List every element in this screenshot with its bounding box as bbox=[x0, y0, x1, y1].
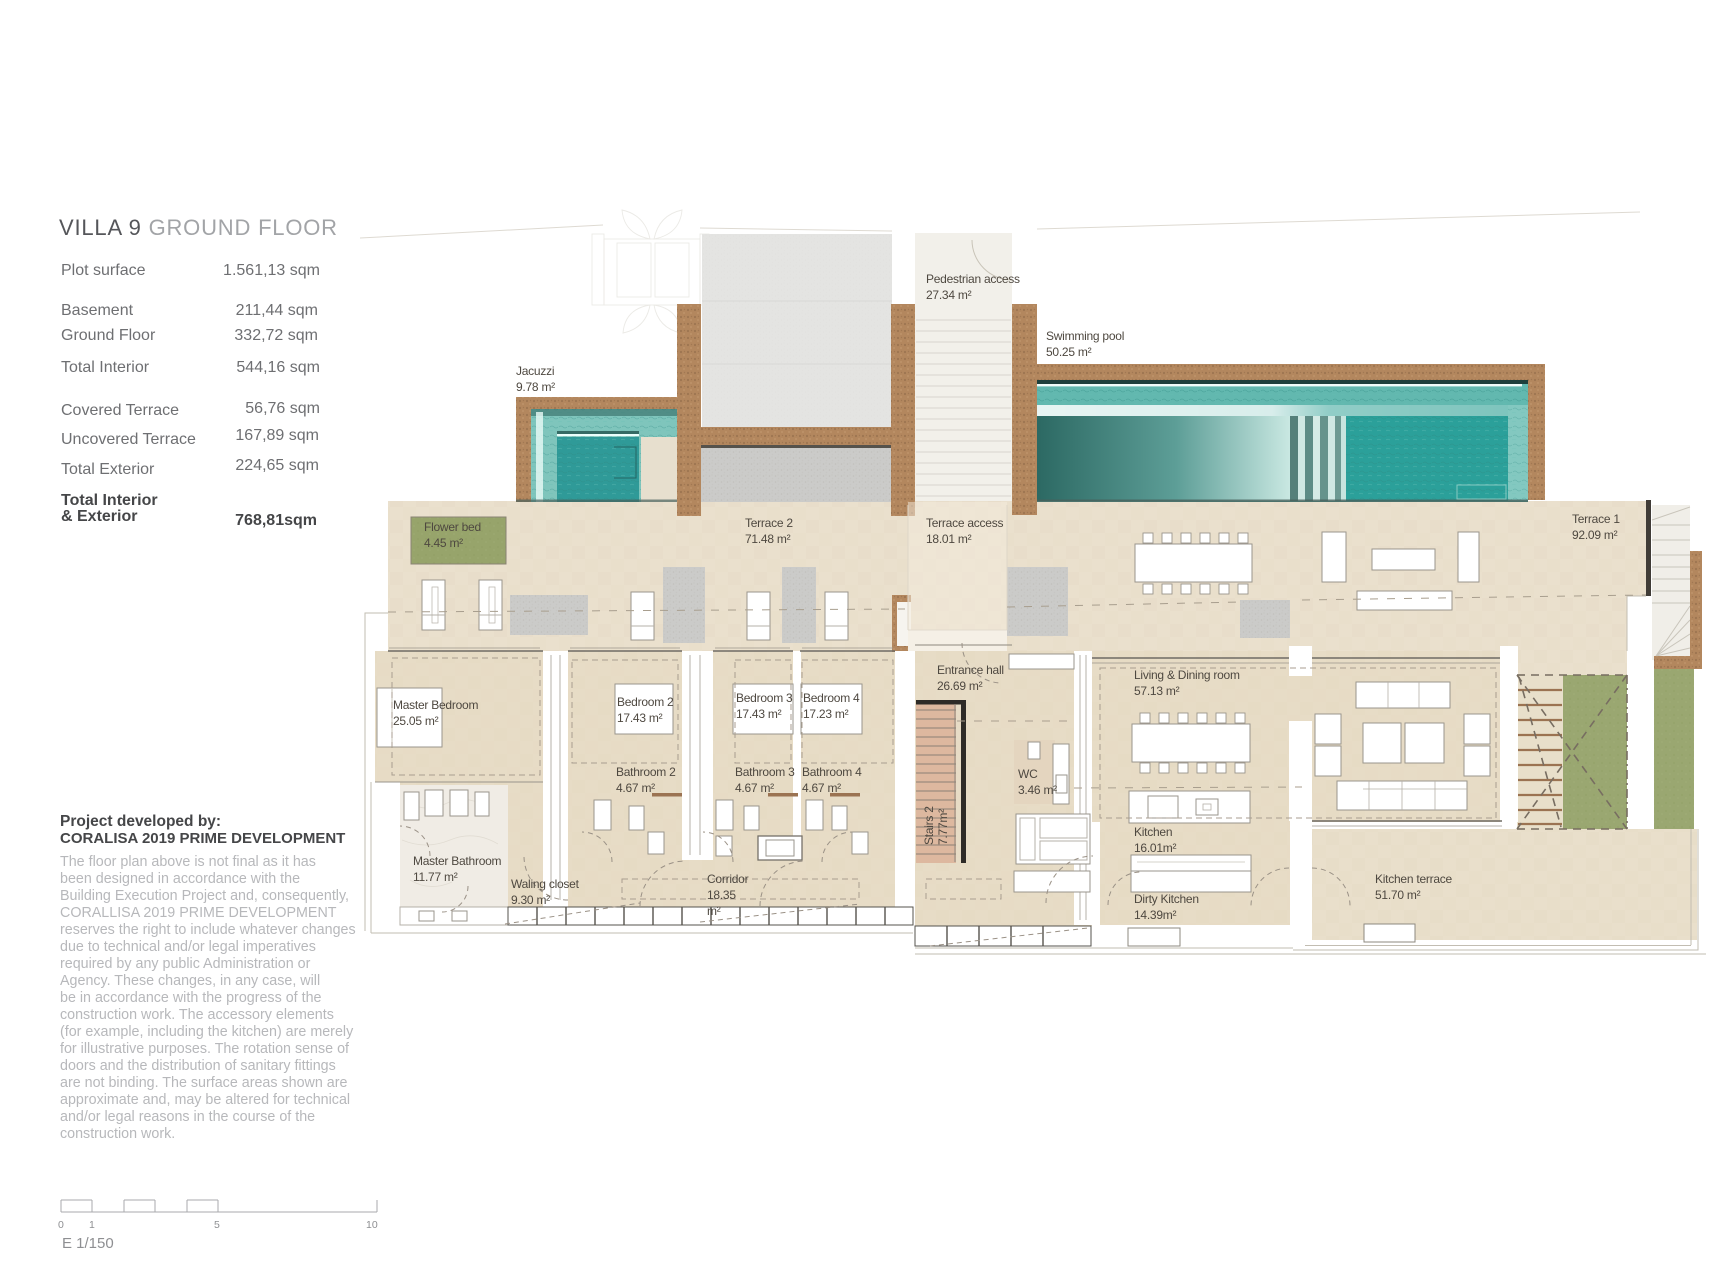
svg-text:7.77m²: 7.77m² bbox=[936, 809, 950, 845]
svg-text:57.13 m²: 57.13 m² bbox=[1134, 684, 1180, 698]
svg-text:71.48 m²: 71.48 m² bbox=[745, 532, 791, 546]
svg-text:Bathroom 4: Bathroom 4 bbox=[802, 765, 862, 779]
svg-text:56,76 sqm: 56,76 sqm bbox=[245, 400, 320, 417]
svg-text:17.43 m²: 17.43 m² bbox=[736, 707, 782, 721]
svg-text:Jacuzzi: Jacuzzi bbox=[516, 364, 554, 378]
svg-text:doors and the distribution of: doors and the distribution of sanitary f… bbox=[60, 1058, 336, 1074]
svg-text:0: 0 bbox=[58, 1219, 64, 1231]
svg-text:4.67 m²: 4.67 m² bbox=[735, 781, 774, 795]
svg-text:construction work.: construction work. bbox=[60, 1126, 175, 1142]
svg-text:construction work. The accesso: construction work. The accessory element… bbox=[60, 1007, 334, 1023]
svg-text:544,16 sqm: 544,16 sqm bbox=[236, 359, 320, 376]
svg-text:Dirty Kitchen: Dirty Kitchen bbox=[1134, 892, 1199, 906]
svg-text:Stairs 2: Stairs 2 bbox=[922, 806, 936, 845]
svg-text:Bathroom 3: Bathroom 3 bbox=[735, 765, 795, 779]
svg-text:Agency. These changes, in any: Agency. These changes, in any case, will bbox=[60, 973, 320, 989]
svg-text:Flower bed: Flower bed bbox=[424, 520, 481, 534]
svg-text:& Exterior: & Exterior bbox=[61, 508, 137, 525]
svg-text:Bathroom 2: Bathroom 2 bbox=[616, 765, 676, 779]
svg-text:9.30 m²: 9.30 m² bbox=[511, 893, 550, 907]
svg-text:been designed in accordance wi: been designed in accordance with the bbox=[60, 871, 300, 887]
svg-text:Plot surface: Plot surface bbox=[61, 262, 146, 279]
svg-text:Terrace access: Terrace access bbox=[926, 516, 1003, 530]
svg-text:3.46 m²: 3.46 m² bbox=[1018, 783, 1057, 797]
svg-text:Total Interior: Total Interior bbox=[61, 359, 150, 376]
svg-text:E 1/150: E 1/150 bbox=[62, 1235, 114, 1252]
svg-text:4.67 m²: 4.67 m² bbox=[616, 781, 655, 795]
svg-text:51.70 m²: 51.70 m² bbox=[1375, 888, 1421, 902]
svg-text:Terrace 1: Terrace 1 bbox=[1572, 512, 1620, 526]
svg-text:approximate and, may be altere: approximate and, may be altered for tech… bbox=[60, 1092, 350, 1108]
svg-text:332,72 sqm: 332,72 sqm bbox=[234, 327, 318, 344]
svg-text:11.77 m²: 11.77 m² bbox=[413, 870, 458, 884]
svg-text:92.09 m²: 92.09 m² bbox=[1572, 528, 1618, 542]
svg-text:(for example, including the ki: (for example, including the kitchen) are… bbox=[60, 1024, 354, 1040]
svg-text:18.01 m²: 18.01 m² bbox=[926, 532, 972, 546]
svg-text:required by any public Adminis: required by any public Administration or bbox=[60, 956, 311, 972]
svg-text:Basement: Basement bbox=[61, 302, 134, 319]
svg-text:Pedestrian access: Pedestrian access bbox=[926, 272, 1020, 286]
svg-text:m²: m² bbox=[707, 904, 721, 918]
svg-text:14.39m²: 14.39m² bbox=[1134, 908, 1177, 922]
svg-text:Master Bathroom: Master Bathroom bbox=[413, 854, 502, 868]
svg-text:for illustrative purposes. The: for illustrative purposes. The rotation … bbox=[60, 1041, 349, 1057]
svg-text:Building Execution Project and: Building Execution Project and, conseque… bbox=[60, 888, 349, 904]
svg-text:9.78 m²: 9.78 m² bbox=[516, 380, 555, 394]
svg-text:1: 1 bbox=[89, 1219, 95, 1231]
svg-text:Master Bedroom: Master Bedroom bbox=[393, 698, 478, 712]
svg-text:Uncovered Terrace: Uncovered Terrace bbox=[61, 431, 196, 448]
svg-text:4.45 m²: 4.45 m² bbox=[424, 536, 463, 550]
svg-text:17.23 m²: 17.23 m² bbox=[803, 707, 849, 721]
svg-text:are not binding. The surface a: are not binding. The surface areas shown… bbox=[60, 1075, 347, 1091]
svg-text:Ground Floor: Ground Floor bbox=[61, 327, 156, 344]
svg-text:and/or legal reasons in the co: and/or legal reasons in the course of th… bbox=[60, 1109, 315, 1125]
svg-text:Bedroom 4: Bedroom 4 bbox=[803, 691, 860, 705]
svg-text:768,81sqm: 768,81sqm bbox=[235, 512, 317, 529]
svg-text:Terrace 2: Terrace 2 bbox=[745, 516, 793, 530]
svg-text:16.01m²: 16.01m² bbox=[1134, 841, 1177, 855]
svg-text:due to technical and/or legal: due to technical and/or legal imperative… bbox=[60, 939, 316, 955]
svg-text:Bedroom 3: Bedroom 3 bbox=[736, 691, 793, 705]
svg-text:be in accordance with the prog: be in accordance with the progress of th… bbox=[60, 990, 322, 1006]
svg-text:Living & Dining room: Living & Dining room bbox=[1134, 668, 1240, 682]
svg-text:27.34 m²: 27.34 m² bbox=[926, 288, 972, 302]
svg-text:The floor plan above is not fi: The floor plan above is not final as it … bbox=[60, 854, 316, 870]
svg-text:10: 10 bbox=[366, 1219, 378, 1231]
svg-text:CORALLISA 2019 PRIME DEVELOPME: CORALLISA 2019 PRIME DEVELOPMENT bbox=[60, 905, 337, 921]
svg-text:Kitchen terrace: Kitchen terrace bbox=[1375, 872, 1453, 886]
svg-text:Total Interior: Total Interior bbox=[61, 492, 158, 509]
svg-text:Total Exterior: Total Exterior bbox=[61, 461, 155, 478]
svg-text:Swimming pool: Swimming pool bbox=[1046, 329, 1124, 343]
svg-text:26.69 m²: 26.69 m² bbox=[937, 679, 983, 693]
svg-text:Bedroom 2: Bedroom 2 bbox=[617, 695, 674, 709]
svg-text:Waling closet: Waling closet bbox=[511, 877, 580, 891]
svg-text:Kitchen: Kitchen bbox=[1134, 825, 1172, 839]
svg-text:Project developed by:: Project developed by: bbox=[60, 813, 221, 830]
svg-text:5: 5 bbox=[214, 1219, 220, 1231]
svg-text:4.67 m²: 4.67 m² bbox=[802, 781, 841, 795]
svg-text:Corridor: Corridor bbox=[707, 872, 749, 886]
svg-text:WC: WC bbox=[1018, 767, 1038, 781]
svg-text:211,44 sqm: 211,44 sqm bbox=[236, 302, 318, 319]
svg-text:17.43 m²: 17.43 m² bbox=[617, 711, 663, 725]
svg-text:reserves the right to include: reserves the right to include whatever c… bbox=[60, 922, 356, 938]
svg-text:50.25 m²: 50.25 m² bbox=[1046, 345, 1092, 359]
svg-text:18.35: 18.35 bbox=[707, 888, 736, 902]
svg-text:224,65 sqm: 224,65 sqm bbox=[235, 457, 319, 474]
svg-text:167,89 sqm: 167,89 sqm bbox=[235, 427, 319, 444]
svg-text:CORALISA 2019 PRIME DEVELOPMEN: CORALISA 2019 PRIME DEVELOPMENT bbox=[60, 830, 345, 847]
svg-text:Entrance hall: Entrance hall bbox=[937, 663, 1004, 677]
svg-text:VILLA 9 GROUND FLOOR: VILLA 9 GROUND FLOOR bbox=[59, 215, 338, 240]
svg-text:1.561,13 sqm: 1.561,13 sqm bbox=[223, 262, 320, 279]
svg-text:Covered Terrace: Covered Terrace bbox=[61, 402, 179, 419]
svg-text:25.05 m²: 25.05 m² bbox=[393, 714, 439, 728]
